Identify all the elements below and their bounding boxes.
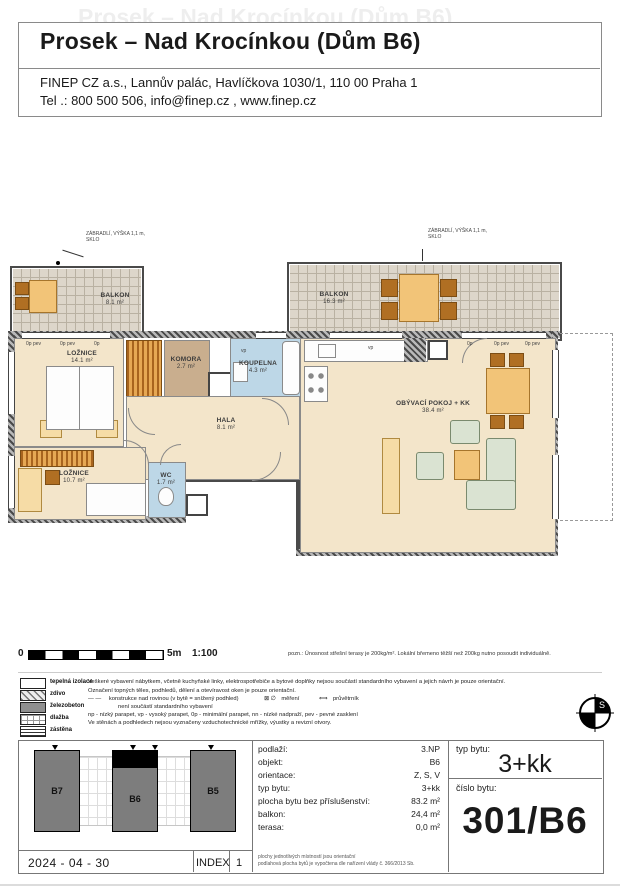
header-divider [18,68,600,69]
closet-living [382,438,400,514]
legend-line-6: Ve stěnách a podhledech nejsou vyznačeny… [88,720,568,726]
building-b7: B7 [34,750,80,832]
label-bedroom-2: LOŽNICE 10.7 m² [44,470,104,485]
info-value-type: 3+kk [300,783,440,793]
titleblock-divider-1 [252,740,253,872]
vent-icon: ⟺ [319,696,327,702]
kitchen-wall-block [404,338,426,362]
shaft-kitchen [428,340,448,360]
balcony-door-living [462,332,546,339]
load-note: pozn.: Únosnost střešní terasy je 200kg/… [288,651,608,657]
site-structure-2 [156,756,194,826]
overhead-dash-icon: — — [88,696,101,702]
legend-label-screen: zástěna [50,727,72,733]
legend-swatch-masonry [20,690,46,701]
legend-swatch-tiling [20,714,46,725]
armchair-1 [450,420,480,444]
unit-number-label: číslo bytu: [456,783,497,793]
winlabel-left-3: 0p [94,341,100,347]
fine-print: plochy jednotlivých místností jsou orien… [258,854,443,867]
info-value-balcony: 24,4 m² [300,809,440,819]
page-bottom-edge [0,884,620,886]
legend-label-tiling: dlažba [50,715,69,721]
unit-number-value: 301/B6 [448,800,602,842]
desk-bedroom-2 [18,468,42,512]
label-bedroom-1: LOŽNICE 14.1 m² [52,350,112,365]
scale-five: 5m [167,648,181,659]
info-value-floor: 3.NP [300,744,440,754]
scale-zero: 0 [18,648,24,659]
unit-type-value: 3+kk [448,750,602,779]
scale-bar [28,650,164,660]
winlabel-right-1: 0p [467,341,473,347]
info-value-orientation: Z, S, V [300,770,440,780]
info-label-balcony: balkon: [258,809,285,819]
legend-swatch-insulation [20,678,46,689]
wardrobe-bedroom-2 [20,450,94,467]
balcony-left-chair-1 [15,282,29,295]
scale-ratio: 1:100 [192,648,218,659]
bed-double-right [79,366,114,430]
info-label-terrace: terasa: [258,822,284,832]
window-right-1 [552,350,559,418]
date-row-divider [18,850,252,851]
winlabel-right-3: 0p pev [525,341,540,347]
stove [304,366,328,402]
dining-chair-3 [490,415,505,429]
shaft-2 [186,494,208,516]
toilet [158,487,174,506]
balcony-left-label: BALKON 8.1 m² [85,292,145,307]
info-label-orientation: orientace: [258,770,295,780]
armchair-2 [416,452,444,480]
window-left-2 [8,456,15,508]
balcony-right-chair-2 [440,279,457,297]
index-divider-1 [193,850,194,872]
winlabel-left-2: 0p pev [60,341,75,347]
page-title: Prosek – Nad Krocínkou (Dům B6) [40,28,580,55]
window-left-1 [8,352,15,414]
coffee-table [454,450,480,480]
building-b5: B5 [190,750,236,832]
window-bath [256,332,286,339]
bed-double-left [46,366,81,430]
winlabel-right-2: 0p pev [494,341,509,347]
balcony-right-chair-1 [381,279,398,297]
info-value-object: B6 [300,757,440,767]
contact-line: Tel .: 800 500 506, info@finep.cz , www.… [40,92,580,110]
vp-label-bath: vp [241,348,246,354]
info-label-type: typ bytu: [258,783,290,793]
label-komora: KOMORA 2.7 m² [160,356,212,371]
compass-north-letter: S [599,700,605,710]
leader-line-left [62,250,83,258]
vp-label-kitchen: vp [368,345,373,351]
label-wc: WC 1.7 m² [138,472,194,487]
legend-swatch-concrete [20,702,46,713]
info-value-terrace: 0,0 m² [300,822,440,832]
index-value: 1 [236,857,242,869]
balcony-left-table [29,280,57,313]
wardrobe-bedroom-1 [126,340,162,400]
unit-panel-divider [448,778,602,779]
meter-icon: ⊠ ∅ [264,696,276,702]
window-kitchen [330,332,402,339]
window-right-2 [552,455,559,519]
site-structure-1 [78,756,116,826]
index-label: INDEX [196,857,230,869]
balcony-right-label: BALKON 16.3 m² [304,291,364,306]
compass-icon: S [576,694,614,732]
kitchen-sink [318,344,336,358]
legend-label-concrete: železobeton [50,703,84,709]
label-hala: HALA 8.1 m² [196,417,256,432]
label-koupelna: KOUPELNA 4.3 m² [228,360,288,375]
railing-note-right: ZÁBRADLÍ, VÝŠKA 1,1 m, SKLO [428,228,487,240]
legend-swatch-screen [20,726,46,737]
legend-line-5: np - nízký parapet, vp - vysoký parapet,… [88,712,568,718]
legend-line-4: není součástí standardního vybavení [118,704,568,710]
bed-single [86,483,146,516]
legend-line-2: Označení topných těles, podhledů, dělení… [88,688,568,694]
address-line: FINEP CZ a.s., Lannův palác, Havlíčkova … [40,74,580,92]
building-b6-unit-highlight [113,751,157,768]
dining-chair-2 [509,353,524,367]
window-bedroom1 [22,332,110,339]
leader-line-right [422,249,423,261]
leader-dot-left [56,261,60,265]
legend-line-3: — — konstrukce nad rovinou (v bytě = sní… [88,696,568,702]
balcony-right-chair-4 [440,302,457,320]
floorplan-page: Prosek – Nad Krocínkou (Dům B6) Prosek –… [0,0,620,893]
balcony-left-chair-2 [15,297,29,310]
section-divider [18,672,602,673]
legend-line-1: Veškeré vybavení nábytkem, včetně kuchyň… [88,679,568,685]
legend-label-insulation: tepelná izolace [50,679,93,685]
sofa-horizontal [466,480,516,510]
info-label-object: objekt: [258,757,283,767]
date: 2024 - 04 - 30 [28,856,110,870]
dining-chair-1 [490,353,505,367]
company-address: FINEP CZ a.s., Lannův palác, Havlíčkova … [40,74,580,110]
balcony-right-chair-3 [381,302,398,320]
legend-label-masonry: zdivo [50,691,65,697]
railing-note-left: ZÁBRADLÍ, VÝŠKA 1,1 m, SKLO [86,231,145,243]
dining-chair-4 [509,415,524,429]
info-value-area: 83.2 m² [300,796,440,806]
winlabel-left-1: 0p pev [26,341,41,347]
label-living: OBÝVACÍ POKOJ + KK 38.4 m² [373,400,493,415]
info-label-floor: podlaží: [258,744,288,754]
balcony-right-table [399,274,439,322]
neighbour-terrace-outline [560,333,613,521]
